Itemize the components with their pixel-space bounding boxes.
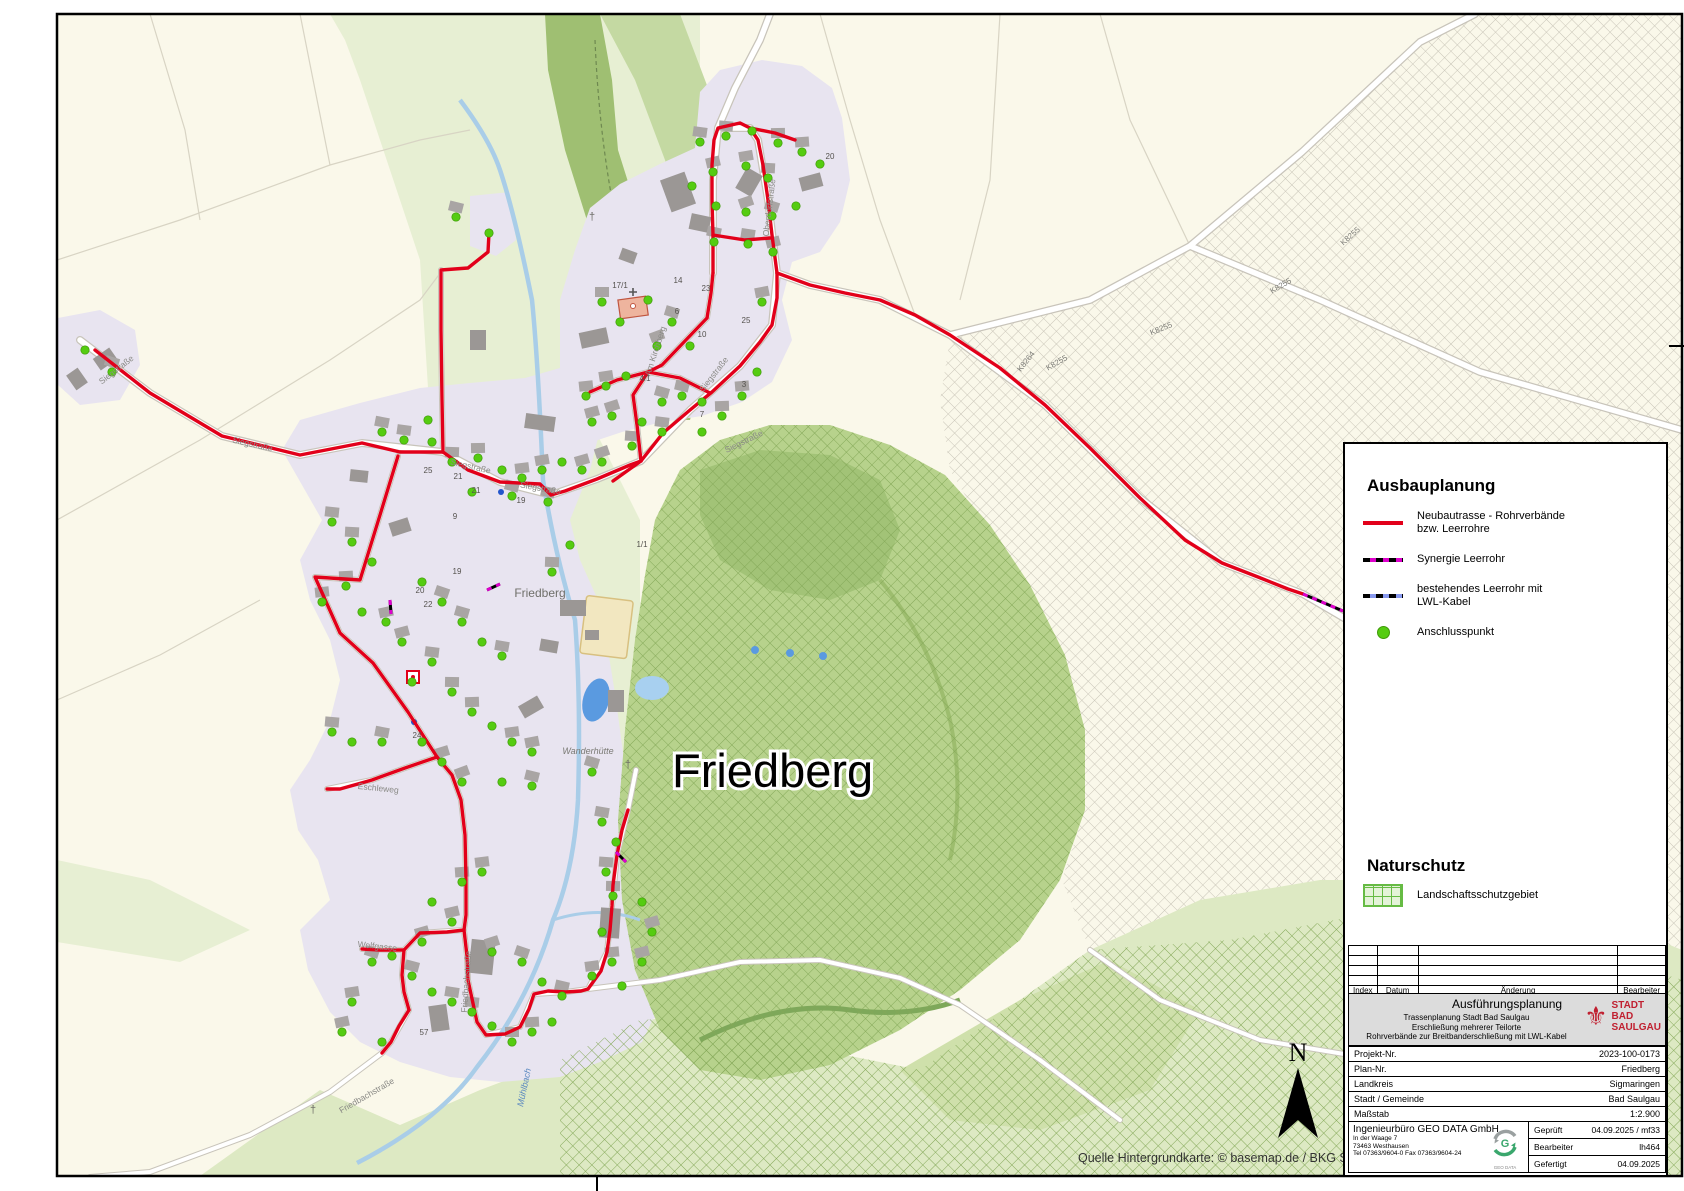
rev-empty-cell: [1377, 946, 1418, 956]
svg-text:20: 20: [416, 586, 425, 595]
plan-sheet: SiegstraßeSiegstraßeSiegstraßeSiegstraße…: [0, 0, 1684, 1191]
svg-text:Wanderhütte: Wanderhütte: [562, 746, 613, 756]
connection-point-swatch: [1377, 626, 1390, 639]
rev-empty-cell: [1349, 966, 1378, 976]
rev-empty-cell: [1618, 976, 1666, 986]
svg-text:23: 23: [702, 284, 711, 293]
legend-panel: Ausbauplanung Neubautrasse - Rohrverbänd…: [1343, 442, 1668, 1177]
city-crest-icon: ⚜: [1584, 1001, 1607, 1032]
rev-empty-cell: [1618, 946, 1666, 956]
company-cell: Ingenieurbüro GEO DATA GmbH In der Waage…: [1349, 1122, 1529, 1172]
nature-title: Naturschutz: [1367, 856, 1465, 876]
revision-table: IndexDatumÄnderungBearbeiter: [1348, 945, 1666, 996]
pond: [635, 676, 669, 700]
titleblock-row: LandkreisSigmaringen: [1348, 1077, 1666, 1092]
rev-empty-cell: [1418, 946, 1618, 956]
city-logo-text: STADTBADSAULGAU: [1612, 1000, 1661, 1033]
svg-text:†: †: [589, 211, 595, 223]
plan-type-block: Ausführungsplanung Trassenplanung Stadt …: [1348, 993, 1666, 1046]
svg-text:21: 21: [472, 486, 481, 495]
svg-text:G: G: [1501, 1138, 1510, 1150]
titleblock-row: Plan-Nr.Friedberg: [1348, 1062, 1666, 1077]
rev-empty-cell: [1618, 956, 1666, 966]
approval-row: Gefertigt04.09.2025: [1529, 1156, 1665, 1172]
titleblock-row: Maßstab1:2.900: [1348, 1107, 1666, 1122]
approval-rows: Geprüft04.09.2025 / mf33Bearbeiterlh464G…: [1529, 1122, 1665, 1172]
rev-empty-cell: [1377, 976, 1418, 986]
svg-text:Friedberg: Friedberg: [514, 586, 565, 600]
rev-empty-cell: [1377, 966, 1418, 976]
legend-item-bestehendes: bestehendes Leerrohr mit LWL-Kabel: [1363, 583, 1643, 609]
svg-text:25: 25: [742, 316, 751, 325]
svg-text:3: 3: [742, 380, 747, 389]
company-approval-block: Ingenieurbüro GEO DATA GmbH In der Waage…: [1348, 1121, 1666, 1173]
rev-empty-cell: [1377, 956, 1418, 966]
svg-text:1/1: 1/1: [636, 540, 648, 549]
svg-text:4/1: 4/1: [639, 374, 651, 383]
rev-empty-cell: [1349, 976, 1378, 986]
svg-text:25: 25: [424, 466, 433, 475]
svg-text:21: 21: [454, 472, 463, 481]
legend-title: Ausbauplanung: [1367, 476, 1495, 496]
titleblock-row: Stadt / GemeindeBad Saulgau: [1348, 1092, 1666, 1107]
svg-text:57: 57: [420, 1028, 429, 1037]
rev-empty-cell: [1349, 946, 1378, 956]
north-arrow-icon: [1271, 1068, 1325, 1140]
svg-text:9: 9: [453, 512, 458, 521]
titleblock-row: Projekt-Nr.2023-100-0173: [1348, 1046, 1666, 1062]
info-icon: [498, 489, 504, 495]
legend-item-neubautrasse: Neubautrasse - Rohrverbände bzw. Leerroh…: [1363, 510, 1643, 536]
svg-text:†: †: [625, 759, 631, 771]
svg-text:7: 7: [700, 410, 705, 419]
approval-row: Bearbeiterlh464: [1529, 1139, 1665, 1156]
svg-text:17/1: 17/1: [612, 281, 628, 290]
lwl-line-swatch: [1363, 594, 1403, 598]
svg-text:10: 10: [698, 330, 707, 339]
svg-text:6: 6: [675, 307, 680, 316]
rev-empty-cell: [1618, 966, 1666, 976]
pond-small: [786, 649, 794, 657]
approval-row: Geprüft04.09.2025 / mf33: [1529, 1122, 1665, 1139]
svg-text:14: 14: [674, 276, 683, 285]
sports-field: [580, 595, 634, 658]
city-logo: ⚜ STADTBADSAULGAU: [1584, 1000, 1661, 1033]
nature-area-swatch: [1363, 884, 1403, 907]
legend-item-anschlusspunkt: Anschlusspunkt: [1363, 626, 1643, 639]
geodata-logo: G GEO DATA: [1485, 1126, 1525, 1170]
pond-small: [819, 652, 827, 660]
legend-item-synergie: Synergie Leerrohr: [1363, 553, 1643, 566]
synergie-line-swatch: [1363, 558, 1403, 562]
red-line-swatch: [1363, 521, 1403, 525]
svg-text:†: †: [310, 1104, 316, 1116]
svg-text:19: 19: [517, 496, 526, 505]
north-label: N: [1268, 1038, 1328, 1068]
svg-text:19: 19: [453, 567, 462, 576]
rev-empty-cell: [1418, 976, 1618, 986]
fold-mark: [1669, 345, 1684, 347]
rev-empty-cell: [1418, 966, 1618, 976]
rev-empty-cell: [1418, 956, 1618, 966]
svg-text:24: 24: [413, 731, 422, 740]
plan-subtitle: Trassenplanung Stadt Bad SaulgauErschlie…: [1349, 1013, 1584, 1042]
geodata-logo-icon: G: [1488, 1126, 1522, 1160]
fold-mark: [596, 1176, 598, 1191]
geodata-logo-label: GEO DATA: [1485, 1165, 1525, 1170]
svg-text:20: 20: [826, 152, 835, 161]
svg-text:22: 22: [424, 600, 433, 609]
north-arrow: N: [1268, 1038, 1328, 1145]
titleblock-rows: Projekt-Nr.2023-100-0173Plan-Nr.Friedber…: [1348, 1046, 1666, 1122]
place-label-friedberg: Friedberg: [672, 744, 873, 797]
rev-empty-cell: [1349, 956, 1378, 966]
legend-item-landschaftsschutz: Landschaftsschutzgebiet: [1363, 884, 1538, 907]
pond-small: [751, 646, 759, 654]
